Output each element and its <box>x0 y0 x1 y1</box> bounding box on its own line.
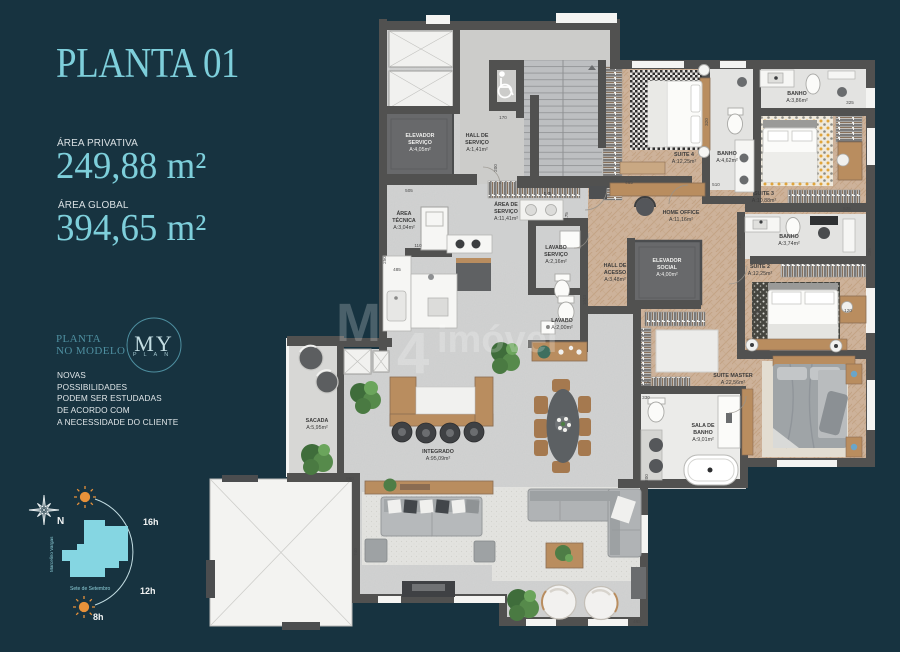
svg-text:imóvel: imóvel <box>437 319 557 361</box>
svg-text:SUITE 3: SUITE 3 <box>754 191 774 197</box>
svg-text:SOCIAL: SOCIAL <box>657 265 678 271</box>
svg-text:1043: 1043 <box>582 294 587 305</box>
svg-text:175: 175 <box>564 212 569 220</box>
svg-text:ÁREA DE: ÁREA DE <box>494 201 518 208</box>
svg-text:130: 130 <box>737 241 742 249</box>
svg-text:465: 465 <box>633 619 641 624</box>
svg-text:BANHO: BANHO <box>779 234 798 240</box>
svg-text:335: 335 <box>867 248 872 256</box>
svg-text:A:1,41m²: A:1,41m² <box>466 147 488 153</box>
svg-text:SUITE MASTER: SUITE MASTER <box>713 373 753 379</box>
svg-text:PLAN: PLAN <box>133 352 175 358</box>
svg-text:Marcelino Vargas: Marcelino Vargas <box>49 536 54 572</box>
svg-text:A:4,62m²: A:4,62m² <box>716 158 738 164</box>
svg-text:465: 465 <box>625 180 633 185</box>
svg-text:ÁREA: ÁREA <box>396 210 411 217</box>
svg-text:A:11,16m²: A:11,16m² <box>669 217 693 223</box>
svg-text:A:4,05m²: A:4,05m² <box>409 147 431 153</box>
svg-text:INTEGRADO: INTEGRADO <box>422 449 454 455</box>
svg-text:HALL DE: HALL DE <box>466 133 489 139</box>
svg-text:SUITE 4: SUITE 4 <box>674 152 694 158</box>
svg-text:TÉCNICA: TÉCNICA <box>392 216 416 224</box>
svg-text:16h: 16h <box>143 517 159 527</box>
svg-text:A:22,56m²: A:22,56m² <box>721 380 746 386</box>
svg-text:505: 505 <box>405 188 413 193</box>
svg-text:BANHO: BANHO <box>693 430 712 436</box>
svg-text:A:3,04m²: A:3,04m² <box>393 225 415 231</box>
svg-text:4: 4 <box>397 321 429 386</box>
svg-text:485: 485 <box>393 267 401 272</box>
svg-text:SERVIÇO: SERVIÇO <box>494 209 518 215</box>
svg-text:BANHO: BANHO <box>787 91 806 97</box>
svg-text:A:11,41m²: A:11,41m² <box>494 216 518 222</box>
svg-text:BANHO: BANHO <box>717 151 736 157</box>
svg-text:325: 325 <box>846 100 854 105</box>
svg-text:A:9,01m²: A:9,01m² <box>692 437 714 443</box>
svg-text:170: 170 <box>499 115 507 120</box>
svg-text:200: 200 <box>493 164 498 172</box>
svg-text:525: 525 <box>843 206 851 211</box>
svg-text:200: 200 <box>644 474 649 482</box>
svg-text:A:3,48m²: A:3,48m² <box>604 277 626 283</box>
svg-text:A:95,09m²: A:95,09m² <box>426 456 451 462</box>
svg-text:SERVIÇO: SERVIÇO <box>408 140 432 146</box>
svg-text:HALL DE: HALL DE <box>604 263 627 269</box>
svg-text:12h: 12h <box>140 586 156 596</box>
svg-text:335: 335 <box>753 310 761 315</box>
svg-text:A:10,88m²: A:10,88m² <box>752 198 777 204</box>
svg-text:A:12,25m²: A:12,25m² <box>748 271 773 277</box>
svg-text:250: 250 <box>382 256 387 264</box>
svg-text:330: 330 <box>642 395 650 400</box>
svg-text:740: 740 <box>353 548 358 556</box>
svg-text:N: N <box>57 516 64 527</box>
svg-text:110: 110 <box>414 243 422 248</box>
svg-text:A:3,86m²: A:3,86m² <box>786 98 808 104</box>
svg-text:SERVIÇO: SERVIÇO <box>544 252 568 258</box>
svg-text:ELEVADOR: ELEVADOR <box>652 258 681 264</box>
svg-text:A:4,00m²: A:4,00m² <box>656 272 678 278</box>
svg-text:M: M <box>336 293 381 353</box>
svg-text:SALA DE: SALA DE <box>691 423 715 429</box>
svg-text:ACESSO: ACESSO <box>604 270 626 276</box>
svg-text:ELEVADOR: ELEVADOR <box>405 133 434 139</box>
svg-text:LAVABO: LAVABO <box>545 245 567 251</box>
svg-text:8h: 8h <box>93 612 104 622</box>
svg-text:HOME OFFICE: HOME OFFICE <box>663 210 700 216</box>
svg-text:120: 120 <box>844 308 852 313</box>
svg-text:SACADA: SACADA <box>306 418 329 424</box>
svg-text:SERVIÇO: SERVIÇO <box>465 140 489 146</box>
svg-text:SUITE 2: SUITE 2 <box>750 264 770 270</box>
svg-text:A:5,95m²: A:5,95m² <box>306 425 328 431</box>
svg-text:A:2,16m²: A:2,16m² <box>545 259 567 265</box>
svg-text:A:3,74m²: A:3,74m² <box>778 241 800 247</box>
svg-text:545: 545 <box>544 191 552 196</box>
svg-text:320: 320 <box>704 118 709 126</box>
svg-text:A:12,25m²: A:12,25m² <box>672 159 697 165</box>
svg-text:960: 960 <box>346 476 354 481</box>
svg-text:510: 510 <box>712 182 720 187</box>
svg-text:Sete de Setembro: Sete de Setembro <box>70 586 111 592</box>
svg-text:775: 775 <box>643 380 651 385</box>
